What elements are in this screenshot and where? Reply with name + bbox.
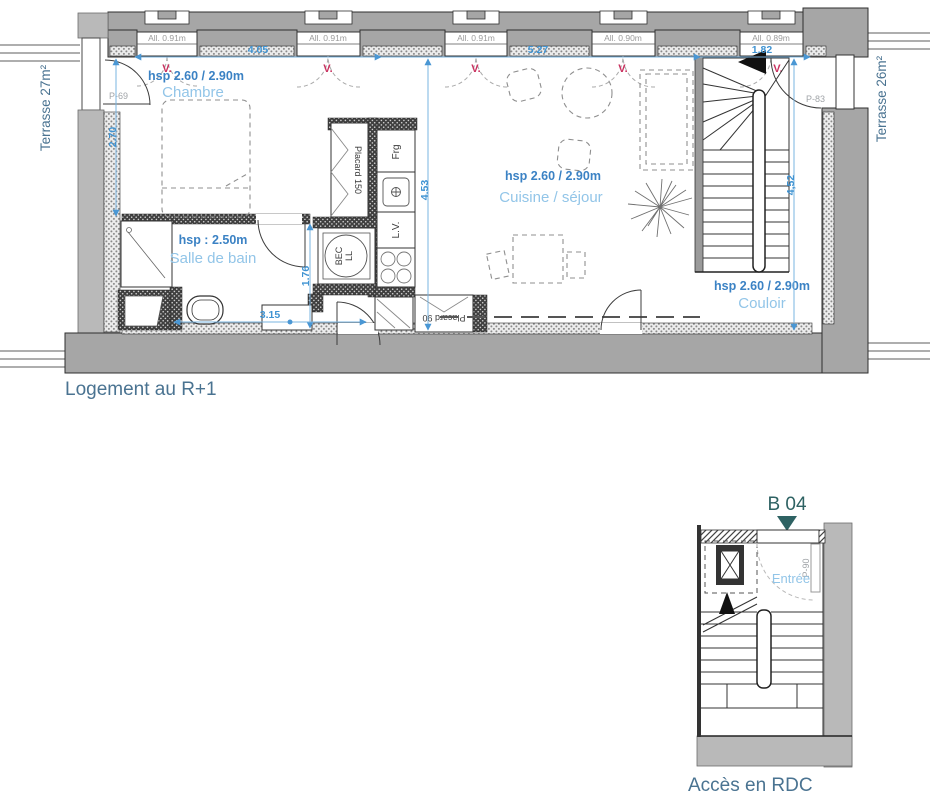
dining-table <box>513 235 563 283</box>
chair <box>567 252 585 278</box>
room-cuisine-sejour: hsp 2.60 / 2.90m Cuisine / séjour <box>486 67 693 283</box>
bath-label: Salle de bain <box>170 250 257 267</box>
chair <box>486 250 509 279</box>
vent-mark: V. <box>323 63 332 75</box>
sejour-label: Cuisine / séjour <box>499 189 602 206</box>
dim-bath-width: 3.15 <box>260 309 281 321</box>
stair-up-arrow <box>719 592 735 614</box>
toilet <box>187 296 223 324</box>
entrance-lintel <box>757 530 819 543</box>
chambre-label: Chambre <box>162 84 224 101</box>
terrace-left-label: Terrasse 27m² <box>38 64 53 151</box>
window-2: All. 0.91m V. <box>297 32 360 87</box>
window-sill-label: All. 0.91m <box>148 33 186 43</box>
closet-150-label: Placard 150 <box>353 146 363 194</box>
vent-mark: V. <box>618 63 627 75</box>
window-sill-label: All. 0.90m <box>604 33 642 43</box>
closet-placard-90: Placard 90 <box>415 295 473 332</box>
access-plan: B 04 P-90 Entrée <box>688 494 852 796</box>
chambre-hsp: hsp 2.60 / 2.90m <box>148 69 244 83</box>
dim-chambre-height: 2.70 <box>107 127 119 148</box>
chair <box>505 67 543 104</box>
dim-bath-height: 1.76 <box>300 266 312 287</box>
washer-label-2: LL <box>344 251 354 261</box>
unit-pointer-icon <box>777 516 797 531</box>
main-plan-title: Logement au R+1 <box>65 379 217 400</box>
door-p69-label: P-69 <box>109 91 128 101</box>
round-table <box>562 68 612 118</box>
window-sill-label: All. 0.91m <box>309 33 347 43</box>
chair <box>557 138 592 171</box>
terrace-right-label: Terrasse 26m² <box>874 55 889 142</box>
door-p90-leaf <box>811 544 820 592</box>
fridge-label: Frg <box>391 145 402 160</box>
staircase-main <box>695 50 789 272</box>
window-sill-label: All. 0.91m <box>457 33 495 43</box>
unit-label: B 04 <box>767 494 807 515</box>
stair-handrail <box>757 610 771 688</box>
door-p83-label: P-83 <box>806 94 825 104</box>
couloir-label: Couloir <box>738 295 786 312</box>
bath-hsp: hsp : 2.50m <box>179 233 248 247</box>
couloir-hsp: hsp 2.60 / 2.90m <box>714 279 810 293</box>
cooktop <box>377 248 415 287</box>
door-p83-leaf <box>836 55 854 109</box>
window-3: All. 0.91m V. <box>445 32 507 87</box>
dim-stair-width: 1.82 <box>752 44 773 56</box>
plant <box>628 179 692 237</box>
duct-shaft <box>705 541 757 593</box>
dim-kitchen-height: 4.53 <box>419 180 431 201</box>
vent-mark: V. <box>471 63 480 75</box>
dim-couloir-height: 4,52 <box>785 175 797 196</box>
sink <box>377 172 415 212</box>
bathroom-door-arc <box>258 220 305 267</box>
access-plan-title: Accès en RDC <box>688 775 813 796</box>
sejour-hsp: hsp 2.60 / 2.90m <box>505 169 601 183</box>
floor-plan-canvas: All. 0.91m V. All. 0.91m V. All. 0.91m V… <box>0 0 930 800</box>
closet-placard-150: Placard 150 <box>331 123 368 217</box>
washing-machine: BEC LL <box>318 228 375 284</box>
stair-handrail <box>753 90 765 272</box>
window-sill-label: All. 0.89m <box>752 33 790 43</box>
sofa <box>640 70 693 170</box>
window-4: All. 0.90m V. <box>592 32 655 87</box>
bed <box>162 100 250 217</box>
dim-sejour-width: 5.27 <box>528 44 549 56</box>
vent-mark: V. <box>773 63 782 75</box>
dim-chambre-width: 4.05 <box>248 44 269 56</box>
washer-label-1: BEC <box>334 246 344 265</box>
dishwasher-label: L.V. <box>391 222 402 239</box>
entree-label: Entrée <box>772 571 810 586</box>
corner-cabinet <box>375 297 413 330</box>
